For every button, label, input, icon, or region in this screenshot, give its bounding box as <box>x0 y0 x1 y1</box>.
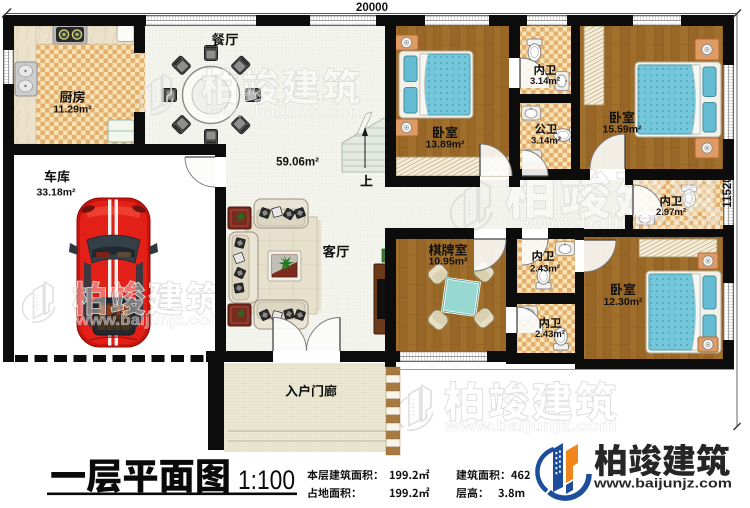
svg-text:59.06m²: 59.06m² <box>276 156 319 168</box>
svg-text:13.89m²: 13.89m² <box>425 138 465 150</box>
svg-text:www.baijunjz.com: www.baijunjz.com <box>444 416 617 435</box>
svg-text:15.59m²: 15.59m² <box>602 123 642 135</box>
svg-text:11520: 11520 <box>722 176 734 207</box>
svg-text:www.baijunjz.com: www.baijunjz.com <box>593 477 732 491</box>
svg-text:1:100: 1:100 <box>238 465 295 495</box>
svg-text:2.43m²: 2.43m² <box>530 264 560 275</box>
svg-text:20000: 20000 <box>356 2 388 14</box>
svg-text:2.97m²: 2.97m² <box>656 207 686 218</box>
svg-text:11.29m²: 11.29m² <box>53 103 92 115</box>
svg-text:3.14m²: 3.14m² <box>531 136 561 147</box>
svg-text:3.14m²: 3.14m² <box>530 76 560 87</box>
svg-text:10.95m²: 10.95m² <box>428 256 468 268</box>
svg-text:33.18m²: 33.18m² <box>36 186 76 198</box>
svg-text:www.baijunjz.com: www.baijunjz.com <box>206 103 365 121</box>
svg-text:www.baijunjz.com: www.baijunjz.com <box>75 312 224 329</box>
svg-text:2.43m²: 2.43m² <box>535 329 565 340</box>
svg-text:12.30m²: 12.30m² <box>603 296 643 308</box>
